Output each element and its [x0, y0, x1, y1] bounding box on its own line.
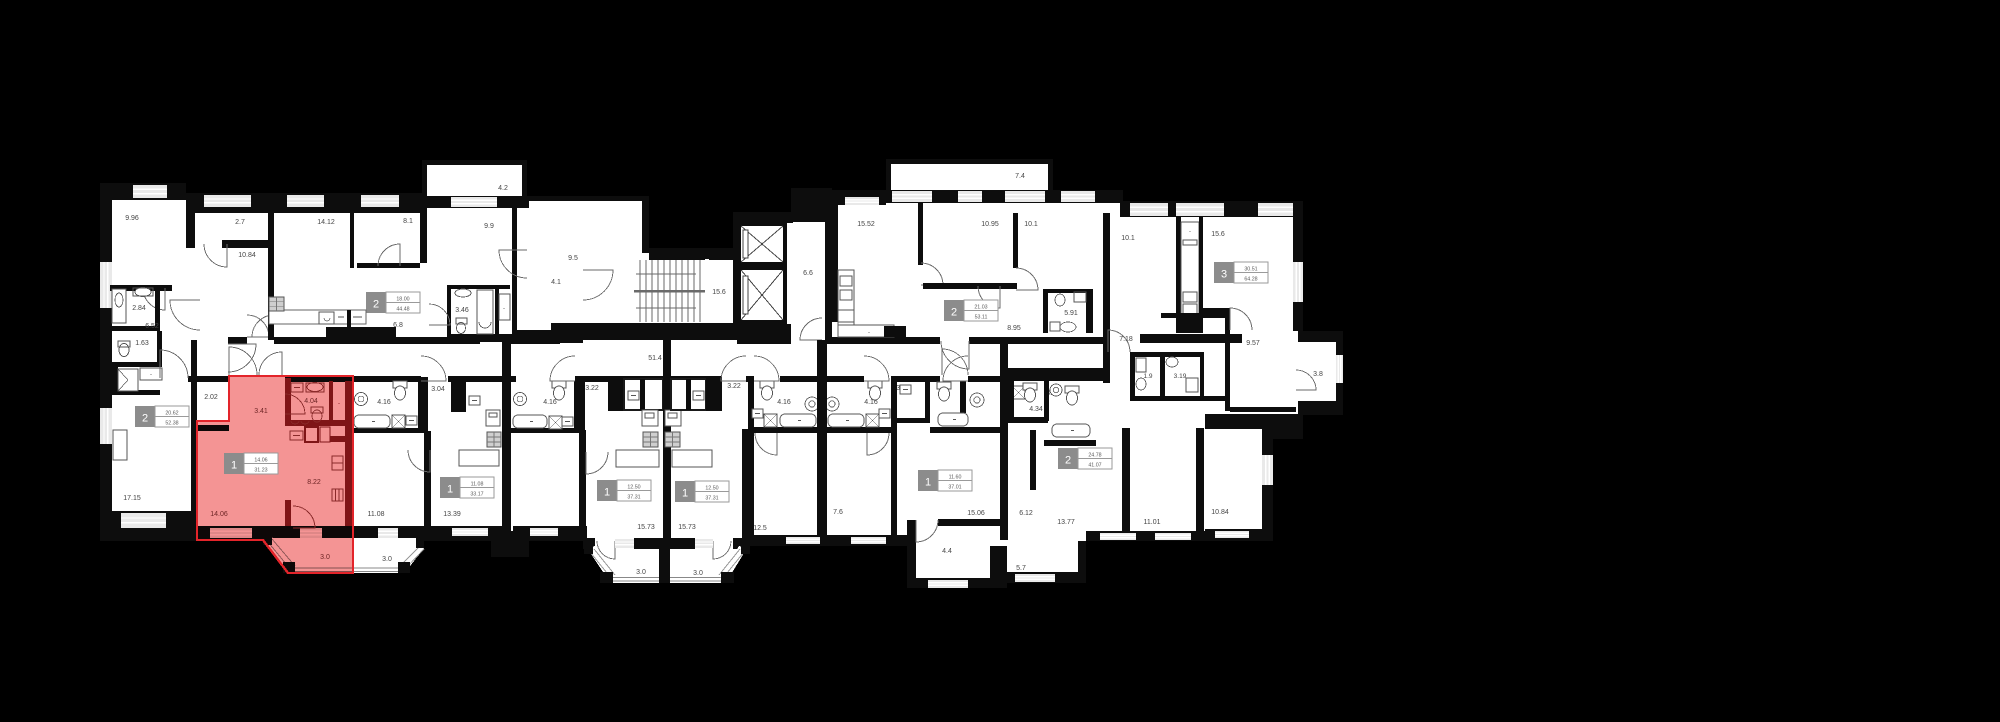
svg-text:3: 3 [1221, 269, 1227, 281]
svg-text:3.0: 3.0 [693, 570, 703, 577]
svg-text:-: - [1189, 229, 1191, 235]
svg-text:10.95: 10.95 [981, 221, 999, 228]
svg-text:-: - [150, 372, 152, 378]
svg-text:30.51: 30.51 [1244, 266, 1257, 272]
svg-text:13.77: 13.77 [1057, 519, 1075, 526]
svg-text:37.31: 37.31 [627, 494, 640, 500]
svg-text:4.16: 4.16 [377, 399, 391, 406]
svg-text:5.91: 5.91 [1064, 310, 1078, 317]
svg-text:17.15: 17.15 [123, 495, 141, 502]
svg-text:31.23: 31.23 [254, 467, 267, 473]
svg-text:7.6: 7.6 [833, 509, 843, 516]
svg-text:2.84: 2.84 [132, 305, 146, 312]
svg-text:53.11: 53.11 [975, 314, 988, 320]
svg-text:4.16: 4.16 [543, 399, 557, 406]
svg-text:6.12: 6.12 [1019, 510, 1033, 517]
svg-text:9.5: 9.5 [568, 255, 578, 262]
svg-text:14.06: 14.06 [254, 457, 267, 463]
svg-text:21.03: 21.03 [974, 304, 987, 310]
svg-text:14.06: 14.06 [210, 511, 228, 518]
svg-text:15.73: 15.73 [637, 524, 655, 531]
svg-text:1.9: 1.9 [1143, 373, 1152, 380]
svg-text:24.78: 24.78 [1088, 452, 1101, 458]
svg-text:8.95: 8.95 [1007, 325, 1021, 332]
svg-text:4.16: 4.16 [777, 399, 791, 406]
svg-text:12.50: 12.50 [705, 485, 718, 491]
svg-text:11.08: 11.08 [368, 511, 385, 518]
svg-text:8.22: 8.22 [307, 479, 321, 486]
svg-text:3.0: 3.0 [636, 569, 646, 576]
svg-text:15.06: 15.06 [967, 510, 985, 517]
svg-text:-: - [868, 330, 870, 336]
svg-text:9.57: 9.57 [1246, 340, 1260, 347]
svg-text:-: - [503, 306, 505, 312]
svg-text:1.63: 1.63 [135, 340, 149, 347]
svg-text:1: 1 [682, 488, 688, 500]
svg-text:5.7: 5.7 [1016, 565, 1026, 572]
svg-text:15.6: 15.6 [1211, 231, 1225, 238]
svg-text:3.41: 3.41 [254, 408, 268, 415]
svg-text:11.60: 11.60 [949, 474, 962, 480]
svg-text:4.34: 4.34 [1029, 406, 1043, 413]
svg-text:20.62: 20.62 [165, 410, 178, 416]
svg-text:10.84: 10.84 [238, 252, 256, 259]
svg-text:15.6: 15.6 [712, 289, 726, 296]
svg-text:4.2: 4.2 [498, 185, 508, 192]
svg-text:52.38: 52.38 [165, 420, 178, 426]
svg-text:4.4: 4.4 [942, 548, 952, 555]
svg-text:2: 2 [142, 413, 148, 425]
svg-text:9.96: 9.96 [125, 215, 139, 222]
svg-text:3.46: 3.46 [455, 307, 469, 314]
svg-text:3.22: 3.22 [727, 383, 741, 390]
svg-text:2.7: 2.7 [235, 219, 245, 226]
svg-text:8.1: 8.1 [403, 218, 413, 225]
svg-text:10.84: 10.84 [1211, 509, 1229, 516]
svg-text:3.8: 3.8 [1313, 371, 1323, 378]
svg-text:3.0: 3.0 [382, 556, 392, 563]
svg-text:2: 2 [951, 307, 957, 319]
svg-text:37.31: 37.31 [705, 495, 718, 501]
svg-text:3.04: 3.04 [431, 386, 445, 393]
svg-text:33.17: 33.17 [470, 491, 483, 497]
svg-text:2: 2 [1065, 455, 1071, 467]
svg-text:9.9: 9.9 [484, 223, 494, 230]
svg-text:1: 1 [604, 487, 610, 499]
svg-text:12.5: 12.5 [753, 525, 767, 532]
svg-text:2.02: 2.02 [204, 394, 218, 401]
svg-text:41.07: 41.07 [1088, 462, 1101, 468]
svg-text:15.73: 15.73 [678, 524, 696, 531]
svg-text:15.52: 15.52 [857, 221, 875, 228]
svg-text:10.1: 10.1 [1024, 221, 1038, 228]
svg-text:37.01: 37.01 [948, 484, 961, 490]
svg-text:14.12: 14.12 [317, 219, 335, 226]
svg-text:11.08: 11.08 [471, 481, 484, 487]
svg-text:-: - [338, 401, 340, 407]
svg-text:10.1: 10.1 [1121, 235, 1135, 242]
svg-text:3.0: 3.0 [320, 554, 330, 561]
svg-text:1: 1 [447, 484, 453, 496]
svg-text:6.52: 6.52 [145, 323, 159, 330]
svg-text:44.48: 44.48 [396, 306, 409, 312]
svg-text:4.04: 4.04 [304, 398, 318, 405]
svg-text:13.39: 13.39 [443, 511, 461, 518]
svg-text:3.19: 3.19 [1174, 373, 1187, 380]
svg-text:1: 1 [925, 477, 931, 489]
svg-text:51.4: 51.4 [648, 355, 662, 362]
svg-text:4.1: 4.1 [551, 279, 561, 286]
svg-text:18.00: 18.00 [396, 296, 409, 302]
svg-text:6.6: 6.6 [803, 270, 813, 277]
svg-text:1: 1 [231, 460, 237, 472]
svg-text:7.4: 7.4 [1015, 173, 1025, 180]
svg-text:3.22: 3.22 [585, 385, 599, 392]
svg-text:2: 2 [373, 299, 379, 311]
svg-text:64.28: 64.28 [1244, 276, 1257, 282]
svg-text:11.01: 11.01 [1144, 519, 1161, 526]
svg-text:12.50: 12.50 [627, 484, 640, 490]
